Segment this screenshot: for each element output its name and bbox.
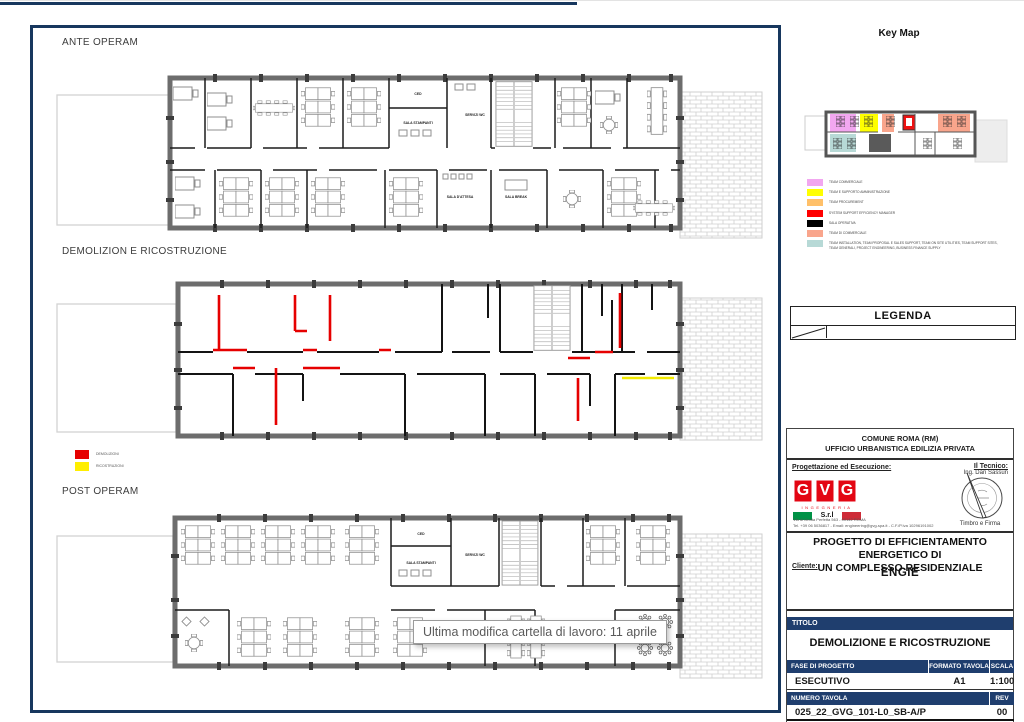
tooltip-text: Ultima modifica cartella di lavoro: 11 a… — [423, 625, 657, 639]
rev-value: 00 — [990, 707, 1014, 718]
room-label-break: SALA BREAK — [505, 195, 528, 199]
authority-header: COMUNE ROMA (RM) UFFICIO URBANISTICA EDI… — [787, 434, 1013, 454]
keymap-legend-row: TEAM COMMERCIALE — [807, 179, 999, 186]
color-swatch — [807, 179, 823, 186]
titolo-value: DEMOLIZIONE E RICOSTRUZIONE — [787, 637, 1013, 649]
gvg-logo: G V G INGEGNERIA S.r.l — [793, 479, 861, 520]
keymap-legend-row: TEAM E SUPPORTO AMMINISTRAZIONE — [807, 189, 999, 196]
legenda-symbol-cell — [791, 326, 827, 338]
numero-value: 025_22_GVG_101-L0_SB-A/P — [787, 707, 990, 718]
color-swatch — [807, 189, 823, 196]
legend-row-ricostruzioni: RICOSTRUZIONI — [75, 460, 124, 472]
design-execution-label: Progettazione ed Esecuzione: — [792, 464, 891, 471]
building-outline — [178, 284, 680, 436]
section-label-ante-operam: ANTE OPERAM — [62, 37, 138, 48]
drawing-viewer: ANTE OPERAM DEMOLIZION E RICOSTRUZIONE P… — [0, 0, 1024, 722]
authority-line1: COMUNE ROMA (RM) — [787, 434, 1013, 444]
keymap-terrace-left — [805, 116, 826, 150]
legend-row-demolizioni: DEMOLIZIONI — [75, 448, 124, 460]
last-modified-tooltip: Ultima modifica cartella di lavoro: 11 a… — [413, 620, 667, 644]
terrace-right-hatched — [680, 534, 762, 678]
floor-plan-ante-operam: CED SALA STAMPANTI SERVIZI WC SALA D'ATT… — [55, 72, 765, 242]
divider — [787, 609, 1013, 611]
scala-header: SCALA — [990, 660, 1014, 673]
keymap-terrace-right — [975, 120, 1007, 162]
legenda-box: LEGENDA — [790, 306, 1016, 340]
key-map-title: Key Map — [785, 28, 1013, 39]
gvg-logo-subtitle: INGEGNERIA — [793, 505, 861, 510]
keymap-legend-row: TEAM DI COMMERCIALE — [807, 230, 999, 237]
table-header-row-1: FASE DI PROGETTO FORMATO TAVOLA SCALA — [787, 660, 1014, 673]
room-label-ced: CED — [417, 532, 425, 536]
section-label-demolizione: DEMOLIZION E RICOSTRUZIONE — [62, 246, 227, 257]
numero-header: NUMERO TAVOLA — [787, 692, 990, 705]
keymap-legend-row: SALA OPERATIVA — [807, 220, 999, 227]
yellow-swatch — [75, 462, 89, 471]
red-swatch-label: DEMOLIZIONI — [96, 452, 119, 456]
section-label-post-operam: POST OPERAM — [62, 486, 138, 497]
yellow-swatch-label: RICOSTRUZIONI — [96, 464, 124, 468]
authority-line2: UFFICIO URBANISTICA EDILIZIA PRIVATA — [787, 444, 1013, 454]
client-name: ENGIE — [787, 567, 1013, 579]
room-label-stampanti: SALA STAMPANTI — [406, 561, 435, 565]
tecnico-label: Il Tecnico: — [964, 463, 1008, 470]
keymap-legend-row: TEAM INSTALLATION, TEAM PROPOSAL E SALES… — [807, 240, 999, 250]
window-top-accent — [0, 2, 577, 5]
room-label-wc: SERVIZI WC — [465, 553, 485, 557]
stamp-caption: Timbro e Firma — [953, 521, 1007, 527]
fase-value: ESECUTIVO — [787, 676, 929, 687]
titleblock-column: Key Map TEAM — [785, 0, 1024, 722]
table-header-row-2: NUMERO TAVOLA REV — [787, 692, 1014, 705]
divider — [787, 458, 1013, 460]
color-swatch — [807, 210, 823, 217]
keymap-legend-row: TEAM PROCUREMENT — [807, 199, 999, 206]
key-map-legend: TEAM COMMERCIALE TEAM E SUPPORTO AMMINIS… — [807, 179, 999, 253]
floor-plan-demolizione — [55, 276, 765, 448]
red-swatch — [75, 450, 89, 459]
diagonal-symbol — [791, 327, 827, 339]
demolition-legend: DEMOLIZIONI RICOSTRUZIONI — [75, 448, 124, 472]
staircase — [496, 82, 532, 147]
titleblock: COMUNE ROMA (RM) UFFICIO URBANISTICA EDI… — [786, 428, 1014, 722]
staircase — [534, 286, 570, 351]
color-swatch — [807, 230, 823, 237]
color-swatch — [807, 199, 823, 206]
divider — [787, 531, 1013, 533]
terrace-left — [57, 304, 176, 432]
terrace-right-hatched — [680, 298, 762, 440]
terrace-right-hatched — [680, 92, 762, 238]
room-label-wc: SERVIZI WC — [465, 113, 485, 117]
room-label-stampanti: SALA STAMPANTI — [403, 121, 432, 125]
floor-plan-post-operam: CED SALA STAMPANTI SERVIZI WC — [55, 510, 765, 682]
color-swatch — [807, 240, 823, 247]
room-label-ced: CED — [414, 92, 422, 96]
table-value-row-1: ESECUTIVO A1 1:100 — [787, 673, 1014, 690]
room-label-attesa: SALA D'ATTESA — [447, 195, 474, 199]
company-address: Via di Grotta Perfetta 563 - 00142 ROMA … — [793, 517, 933, 529]
staircase — [502, 521, 538, 585]
titolo-bar: TITOLO — [787, 617, 1013, 630]
fase-header: FASE DI PROGETTO — [787, 660, 929, 673]
formato-value: A1 — [929, 676, 990, 687]
scala-value: 1:100 — [990, 676, 1014, 687]
rev-header: REV — [990, 692, 1014, 705]
gvg-logo-letters: G V G — [793, 479, 861, 503]
formato-header: FORMATO TAVOLA — [929, 660, 990, 673]
terrace-left — [57, 536, 173, 662]
key-map-plan — [803, 106, 1013, 170]
terrace-left — [57, 95, 169, 225]
table-value-row-2: 025_22_GVG_101-L0_SB-A/P 00 — [787, 705, 1014, 721]
stamp — [953, 471, 1007, 523]
keymap-legend-row: SYSTEM SUPPORT EFFICIENCY MANAGER — [807, 210, 999, 217]
color-swatch — [807, 220, 823, 227]
legenda-title: LEGENDA — [791, 307, 1015, 326]
